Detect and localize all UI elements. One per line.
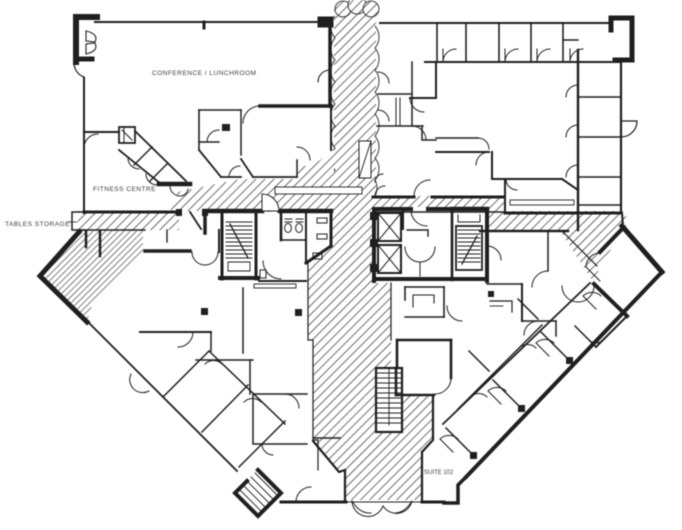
svg-text:FITNESS CENTRE: FITNESS CENTRE [93,186,156,193]
svg-text:SUITE 102: SUITE 102 [424,470,454,476]
svg-text:CONFERENCE / LUNCHROOM: CONFERENCE / LUNCHROOM [152,70,257,77]
svg-text:TABLES STORAGE: TABLES STORAGE [5,221,70,228]
